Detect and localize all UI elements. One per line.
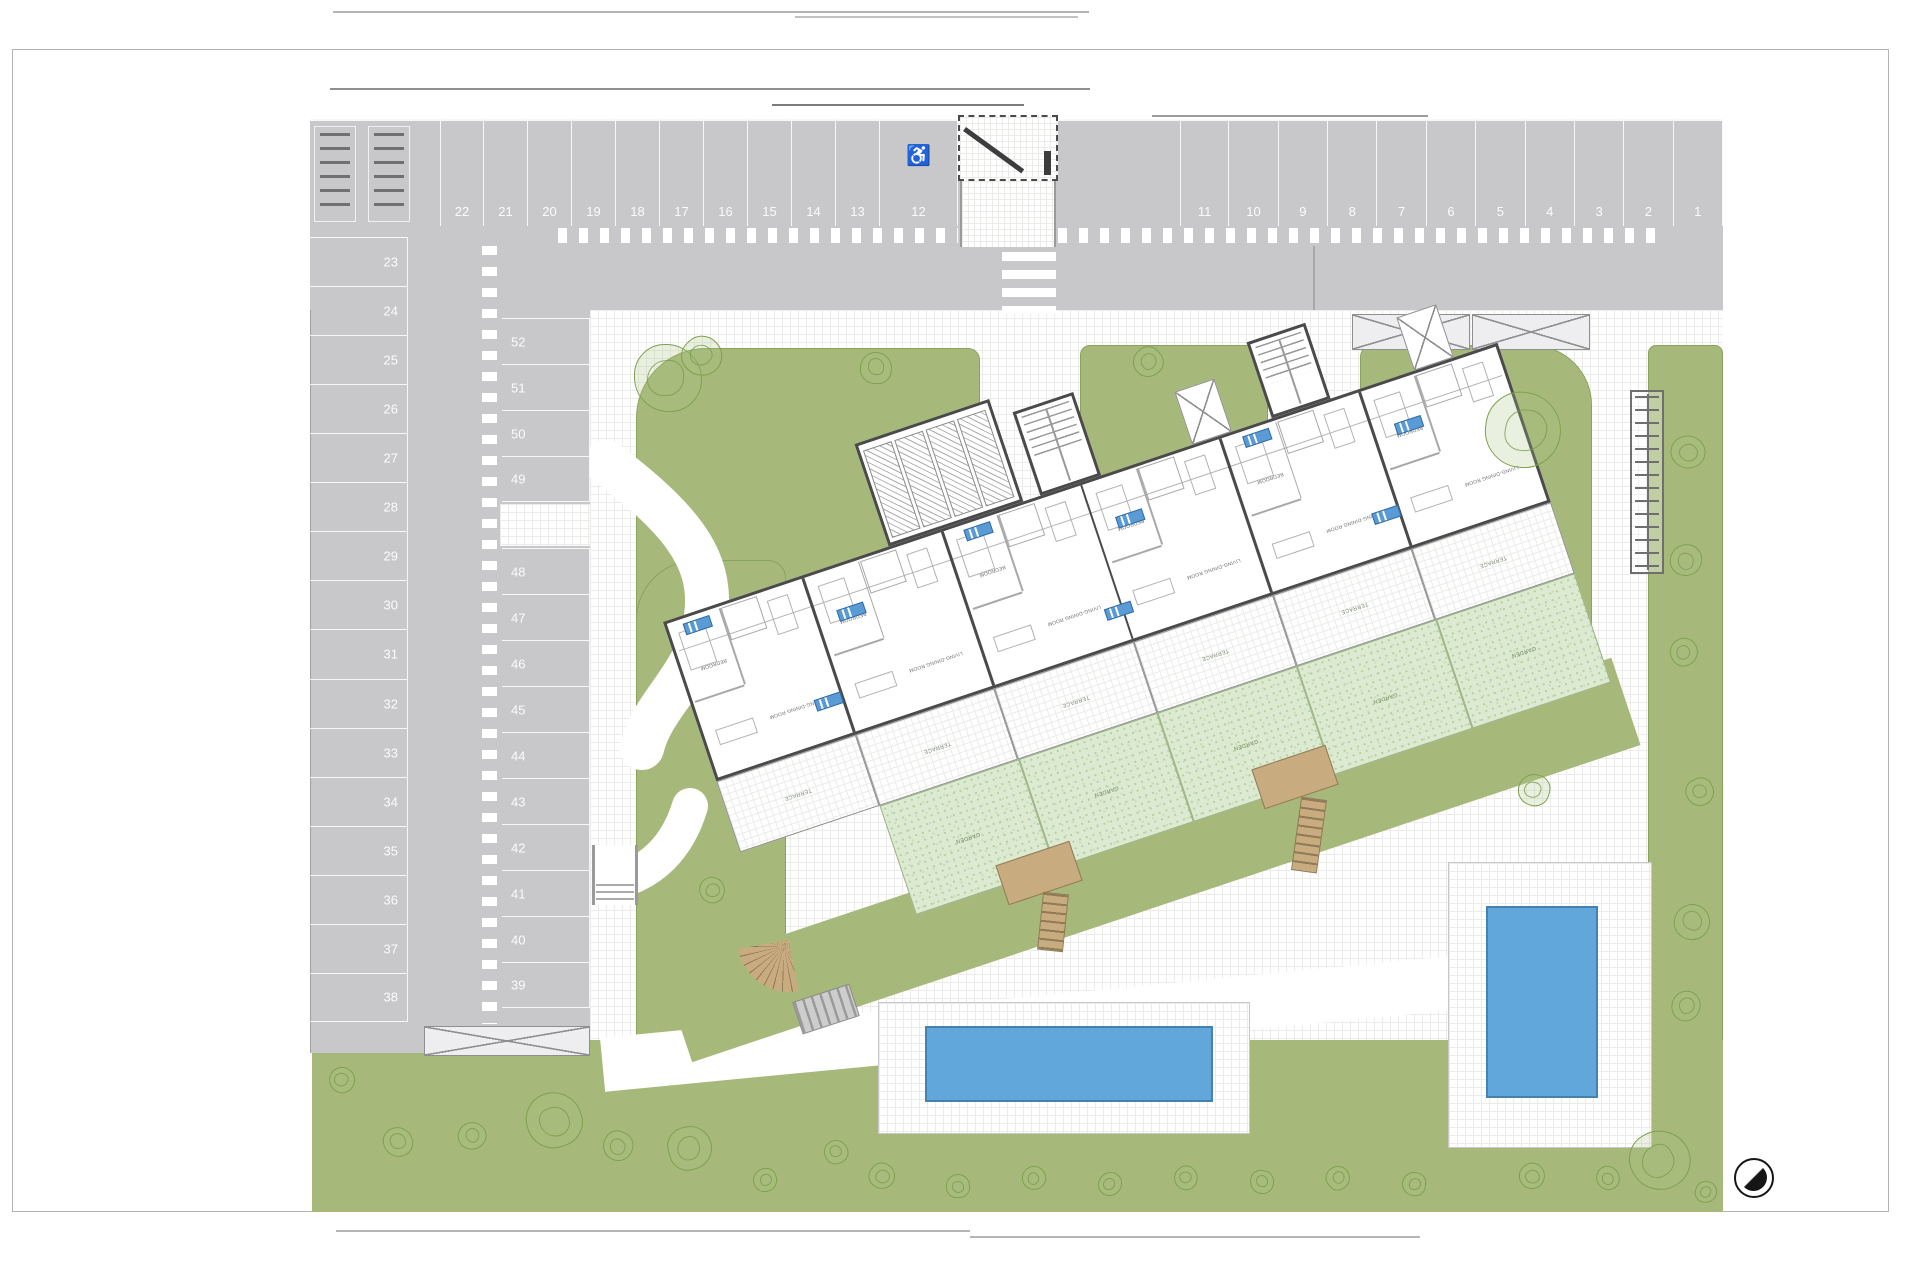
tree-crown [535,1103,573,1141]
stall-number: 8 [1328,205,1376,218]
room-label: LIVING-DINING ROOM [893,645,979,681]
table [767,594,799,635]
lane-dashes-vertical [482,246,497,1024]
stall-number: 3 [1575,205,1623,218]
wall-line [834,638,884,656]
parking-stall: 29 [310,531,408,580]
tree-crown [1673,643,1693,663]
parking-stall: 4 [1526,119,1575,226]
canopy [424,1026,590,1056]
parking-stall: 11 [1180,119,1229,226]
sofa [1132,578,1175,606]
table [1462,361,1494,402]
stall-number: 15 [748,205,791,218]
wall-line [1251,498,1301,516]
tree-crown [1676,441,1701,466]
tree-crown [873,1167,892,1186]
garden-label: GARDEN [1093,784,1119,798]
swimming-pool-main [925,1026,1213,1102]
parking-stall: 39 [502,962,590,1008]
stall-number: 17 [660,205,703,218]
side-ramp-steps [596,884,634,904]
stall-number: 22 [441,205,483,218]
tree-crown [1523,1167,1542,1186]
swimming-pool-second [1486,906,1598,1098]
parking-stall: 5 [1476,119,1525,226]
structure-porch [960,181,1056,247]
parking-stall: 42 [502,824,590,870]
tree-crown [1600,1171,1615,1186]
room-label: LIVING-DINING ROOM [1032,598,1118,634]
stall-number: 44 [511,749,525,762]
stall-number: 48 [511,565,525,578]
stall-number: 34 [384,795,398,808]
parking-stall: 13 [836,119,880,226]
stall-number: 11 [1181,205,1228,218]
stall-number: 25 [384,354,398,367]
stall-number: 39 [511,979,525,992]
parking-stall: 14 [792,119,836,226]
stall-number: 32 [384,697,398,710]
stall-number: 49 [511,473,525,486]
stall-number: 30 [384,599,398,612]
tree-crown [704,882,722,900]
parking-stall: 30 [310,580,408,629]
parking-stall: 36 [310,875,408,924]
stall-number: 9 [1279,205,1327,218]
tree-crown [332,1070,351,1089]
parking-stall: 27 [310,433,408,482]
tree-crown [1103,1178,1116,1191]
stall-number: 33 [384,746,398,759]
parking-stall: 48 [502,548,590,594]
boundary-line [1152,115,1428,117]
stall-number: 27 [384,452,398,465]
tree-crown [1690,781,1710,801]
stall-number: 37 [384,942,398,955]
boundary-line [330,88,1090,90]
parking-stall: 43 [502,778,590,824]
parking-stall: 16 [704,119,748,226]
stall-number: 40 [511,933,525,946]
table [1184,454,1216,495]
table [906,547,938,588]
bike-rack-bars [374,133,404,215]
tree-crown [1330,1169,1347,1186]
parking-stall: 32 [310,679,408,728]
tree-crown [1255,1174,1268,1187]
parking-stall: 10 [1229,119,1278,226]
parking-stall: 52 [502,318,590,364]
parking-stall: 15 [748,119,792,226]
parking-stall: 25 [310,335,408,384]
stall-number: 42 [511,841,525,854]
stall-number: 18 [616,205,659,218]
parking-stall: 47 [502,594,590,640]
parking-stall: 33 [310,728,408,777]
utility-structure [958,115,1058,247]
tree-crown [389,1132,407,1150]
sofa [854,671,897,699]
wall-line [973,591,1023,609]
parking-stall: 31 [310,629,408,678]
tree-crown [1677,995,1698,1016]
parking-stall: 35 [310,826,408,875]
tree-crown [647,360,684,397]
stall-number: 28 [384,501,398,514]
room-label-text: LIVING-DINING ROOM [1186,557,1241,580]
wall-line [1112,545,1162,563]
stall-number: 1 [1674,205,1722,218]
parking-stall: 40 [502,916,590,962]
boundary-line [772,104,1024,106]
table [1045,501,1077,542]
terrace-label: TERRACE [1479,554,1508,569]
parking-stall: 18 [616,119,660,226]
sofa [1410,485,1453,513]
bike-rack [368,126,410,222]
tree-crown [867,358,885,376]
compass-needle [1734,1158,1772,1196]
compass-icon [1734,1158,1774,1198]
terrace-label: TERRACE [922,740,951,755]
parking-stall: 1 [1674,119,1723,226]
stall-number: 26 [384,403,398,416]
parking-stall: 23 [310,237,408,286]
tree-crown [1025,1170,1042,1187]
table [1323,408,1355,449]
parking-stall: 50 [502,410,590,456]
bike-rack-rail [1647,394,1649,570]
lane-dashes [558,228,958,243]
stall-number: 47 [511,611,525,624]
bike-rack [314,126,356,222]
bike-rack [1630,390,1664,574]
parking-stall: 41 [502,870,590,916]
stall-number: 35 [384,844,398,857]
room-label-text: LIVING-DINING ROOM [908,650,963,673]
parking-stall: 51 [502,364,590,410]
tree-crown [686,340,716,370]
parking-stall: 49 [502,456,590,502]
parking-stall: 38 [310,973,408,1022]
stall-number: 19 [572,205,615,218]
tree-crown [1636,1139,1680,1183]
parking-stall: 6 [1427,119,1476,226]
stall-number: 7 [1377,205,1425,218]
tree-crown [1676,551,1696,571]
garden-label: GARDEN [1372,691,1398,705]
stall-number: 12 [880,205,957,218]
room-label-text: LIVING-DINING ROOM [1047,603,1102,626]
stall-number: 45 [511,703,525,716]
stall-number: 38 [384,991,398,1004]
garden-label: GARDEN [1232,737,1258,751]
tree-crown [827,1143,843,1159]
parking-stall: 46 [502,640,590,686]
stall-number: 10 [1229,205,1277,218]
parking-stall: 21 [484,119,528,226]
parking-stall: 7 [1377,119,1426,226]
stall-number: 46 [511,657,525,670]
sofa [1271,531,1314,559]
stall-number: 2 [1624,205,1672,218]
tree-crown [1503,407,1550,454]
terrace-label: TERRACE [1061,693,1090,708]
stall-number: 36 [384,893,398,906]
driveway-edge [1313,246,1315,310]
tree-crown [607,1136,628,1157]
wall-line [1390,452,1440,470]
lane-dashes [1058,228,1665,243]
handicap-icon: ♿ [880,143,957,168]
terrace-label: TERRACE [1340,600,1369,615]
parking-stall: 20 [528,119,572,226]
parking-stall: 26 [310,384,408,433]
sofa [715,717,758,745]
stall-number: 13 [836,205,879,218]
tree-crown [1138,350,1160,372]
garden-label: GARDEN [954,830,980,844]
stall-number: 41 [511,887,525,900]
parking-stall: 12♿ [880,119,958,226]
parking-stall: 3 [1575,119,1624,226]
stall-number: 43 [511,795,525,808]
wall-line [695,685,745,703]
stall-number: 31 [384,648,398,661]
bike-rack-bars [320,133,350,215]
parking-stall: 24 [310,286,408,335]
parking-stall: 37 [310,924,408,973]
tree-crown [674,1134,703,1163]
tree-crown [952,1180,965,1193]
tree-crown [1698,1185,1712,1199]
parking-stall: 34 [310,777,408,826]
stall-number: 50 [511,427,525,440]
parking-walkway [500,504,590,546]
terrace-label: TERRACE [1201,647,1230,662]
stall-number: 6 [1427,205,1475,218]
stall-number: 4 [1526,205,1574,218]
tree-crown [1522,779,1543,800]
stall-number: 51 [511,381,525,394]
parking-stall: 2 [1624,119,1673,226]
terrace-label: TERRACE [783,786,812,801]
room-label: LIVING-DINING ROOM [1171,552,1257,588]
tree-crown [1177,1169,1194,1186]
stall-number: 20 [528,205,571,218]
stall-number: 24 [384,305,398,318]
structure-room [958,115,1058,181]
parking-stall: 22 [440,119,484,226]
parking-stall: 9 [1279,119,1328,226]
parking-stall: 19 [572,119,616,226]
stall-number: 23 [384,256,398,269]
garden-label: GARDEN [1511,644,1537,658]
tree-crown [1408,1177,1422,1191]
stall-number: 29 [384,550,398,563]
parking-stall: 28 [310,482,408,531]
room-label-text: LIVING-DINING ROOM [1464,464,1519,487]
tree-crown [1680,909,1704,933]
tree [945,1173,970,1198]
stall-number: 16 [704,205,747,218]
parking-stall: 44 [502,732,590,778]
stall-number: 21 [484,205,527,218]
stall-number: 52 [511,335,525,348]
structure-door [1044,151,1051,175]
parking-stall: 8 [1328,119,1377,226]
tree-crown [759,1173,773,1187]
crosswalk [1002,252,1056,314]
sofa [993,624,1036,652]
tree-crown [462,1125,482,1145]
site-plan: 2221201918171615141312♿11109876543212324… [0,0,1920,1280]
parking-stall: 45 [502,686,590,732]
stall-number: 5 [1476,205,1524,218]
stall-number: 14 [792,205,835,218]
parking-stall: 17 [660,119,704,226]
